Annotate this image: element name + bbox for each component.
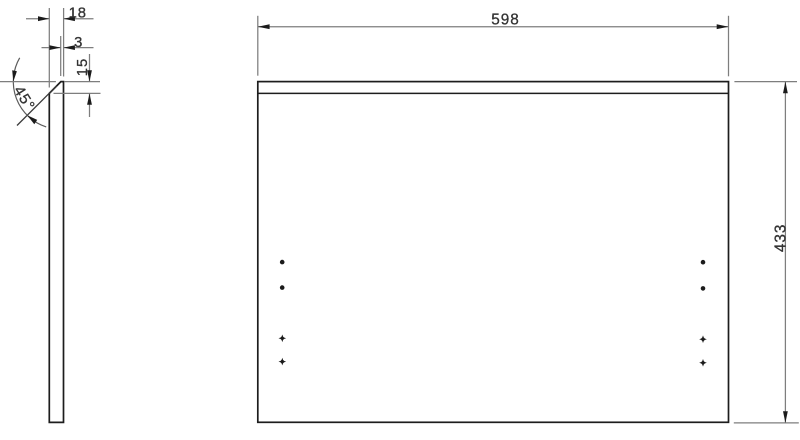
svg-text:3: 3 (74, 35, 83, 51)
svg-text:433: 433 (772, 224, 789, 253)
svg-text:18: 18 (69, 5, 87, 21)
svg-text:598: 598 (491, 12, 520, 29)
svg-text:15: 15 (75, 58, 91, 76)
